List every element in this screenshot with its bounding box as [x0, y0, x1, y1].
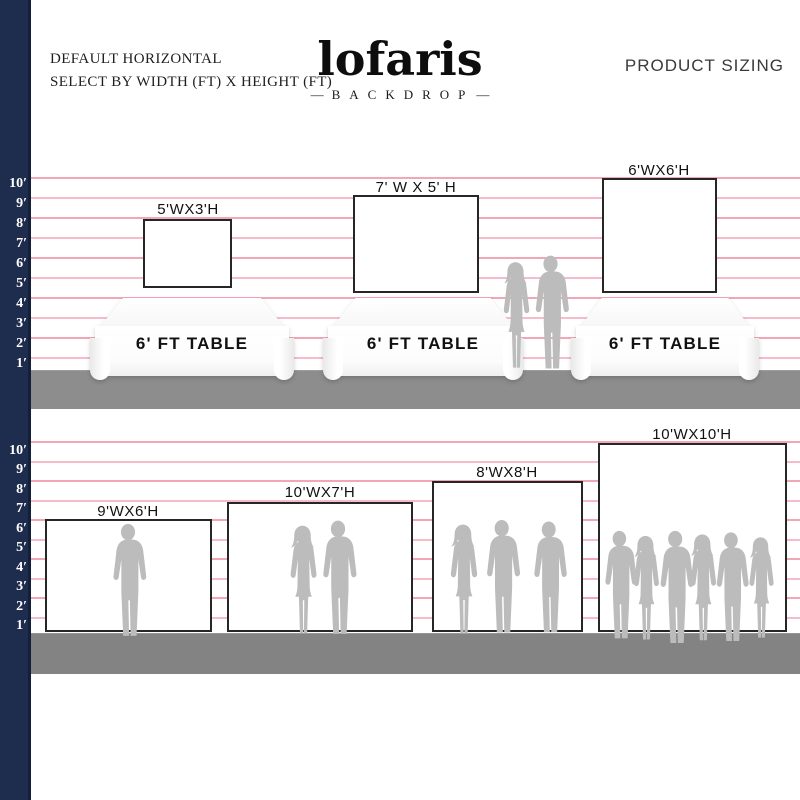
ruler-label: 7′	[0, 236, 27, 252]
ruler-label: 10′	[0, 443, 27, 459]
backdrop-6x6	[602, 178, 717, 293]
page-title: PRODUCT SIZING	[625, 56, 784, 76]
table-label: 6' FT TABLE	[576, 334, 754, 354]
ruler-label: 9′	[0, 462, 27, 478]
two-people-silhouette	[278, 519, 362, 640]
backdrop-size-label: 9'WX6'H	[97, 503, 159, 520]
backdrop-size-label: 7' W X 5' H	[376, 179, 457, 196]
ruler-label: 10′	[0, 176, 27, 192]
tabletop	[580, 298, 751, 328]
backdrop-size-label: 5'WX3'H	[157, 201, 219, 218]
tagline-dash-right: —	[476, 87, 489, 103]
backdrop-5x3	[143, 219, 232, 288]
ruler-label: 7′	[0, 501, 27, 517]
ruler-label: 4′	[0, 560, 27, 576]
ruler-label: 5′	[0, 540, 27, 556]
group-people-silhouette	[598, 530, 788, 649]
backdrop-size-label: 6'WX6'H	[628, 162, 690, 179]
table-label: 6' FT TABLE	[95, 334, 289, 354]
ruler-label: 3′	[0, 579, 27, 595]
tagline-text: BACKDROP	[326, 87, 475, 103]
ruler-label: 5′	[0, 276, 27, 292]
couple-silhouette	[487, 252, 575, 378]
tabletop	[99, 298, 285, 328]
ruler-label: 3′	[0, 316, 27, 332]
backdrop-7x5	[353, 195, 479, 293]
ruler-label: 6′	[0, 256, 27, 272]
table-1: 6' FT TABLE	[95, 298, 289, 380]
product-sizing-chart: DEFAULT HORIZONTAL SELECT BY WIDTH (FT) …	[0, 0, 800, 800]
three-people-silhouette	[441, 517, 575, 640]
ruler-bar	[0, 0, 31, 800]
ruler-label: 6′	[0, 521, 27, 537]
one-person-silhouette	[105, 523, 151, 642]
brand-logo: lofaris — BACKDROP —	[270, 34, 530, 103]
backdrop-size-label: 10'WX10'H	[652, 426, 732, 443]
table-3: 6' FT TABLE	[576, 298, 754, 380]
brand-logo-tagline: — BACKDROP —	[270, 87, 530, 103]
ruler-label: 9′	[0, 196, 27, 212]
brand-logo-text: lofaris	[270, 34, 530, 85]
ruler-label: 1′	[0, 356, 27, 372]
ruler-label: 8′	[0, 216, 27, 232]
ruler-label: 2′	[0, 599, 27, 615]
ruler-label: 8′	[0, 482, 27, 498]
ruler-label: 1′	[0, 618, 27, 634]
tagline-dash-left: —	[311, 87, 324, 103]
backdrop-size-label: 8'WX8'H	[476, 464, 538, 481]
backdrop-size-label: 10'WX7'H	[285, 484, 356, 501]
ruler-label: 2′	[0, 336, 27, 352]
ruler-label: 4′	[0, 296, 27, 312]
